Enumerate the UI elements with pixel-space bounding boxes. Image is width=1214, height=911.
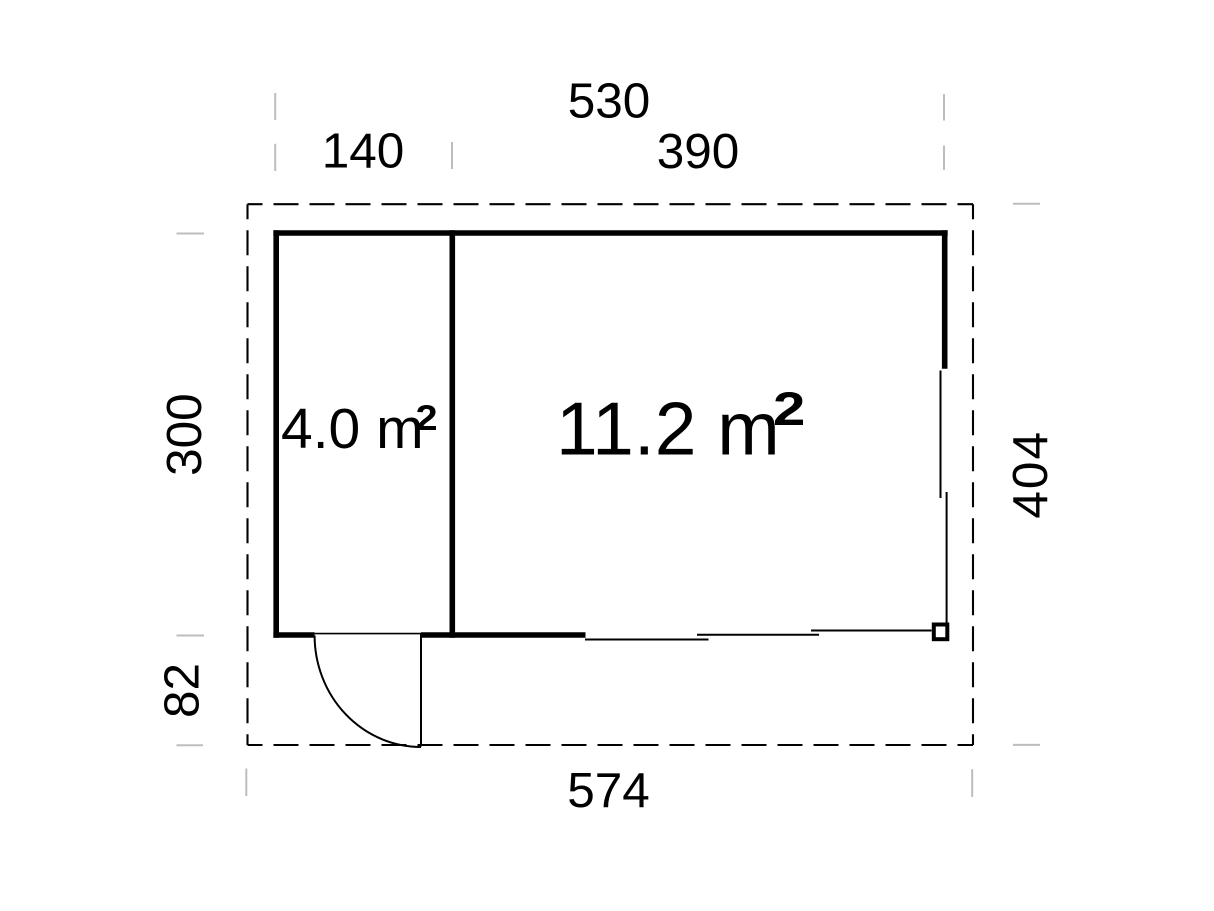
svg-text:574: 574	[567, 763, 650, 818]
svg-text:140: 140	[322, 124, 405, 179]
svg-text:4.0 m: 4.0 m	[281, 397, 424, 461]
svg-text:11.2 m: 11.2 m	[556, 387, 780, 471]
svg-text:390: 390	[657, 124, 740, 179]
svg-text:82: 82	[155, 663, 210, 718]
svg-text:300: 300	[157, 393, 212, 476]
svg-text:404: 404	[1003, 430, 1058, 519]
svg-text:530: 530	[568, 74, 651, 129]
